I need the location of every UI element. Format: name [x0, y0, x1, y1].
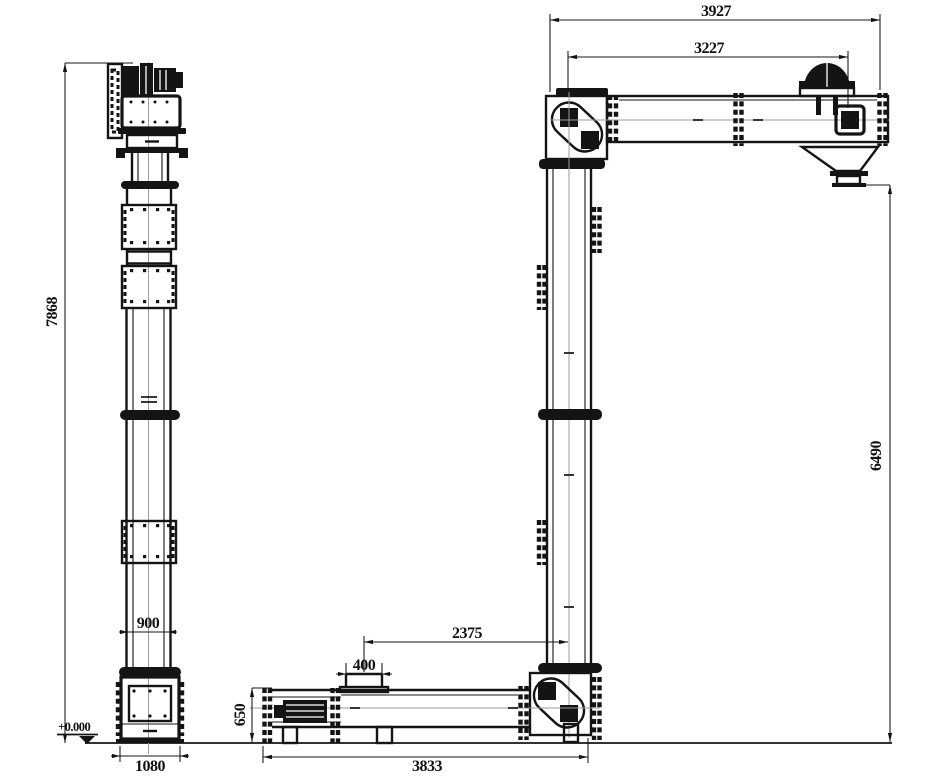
dimension-1080: 1080: [111, 746, 189, 775]
dim-label-650: 650: [232, 703, 249, 726]
elevator-boot: [116, 667, 184, 743]
vertical-leg: [538, 92, 602, 738]
dim-label-3227: 3227: [694, 40, 725, 57]
dim-label-1080: 1080: [135, 758, 166, 775]
leg-flange-joint: [538, 409, 602, 420]
elevation-marker: +0.000: [57, 720, 98, 744]
dim-label-900: 900: [137, 615, 160, 632]
top-corner-unit: [539, 88, 616, 169]
head-mounting-bracket: [108, 64, 122, 138]
elevation-drawing: +0.000: [0, 0, 925, 778]
bracket-bolt-strip: [112, 70, 118, 132]
drawing-sheet: +0.000: [0, 0, 925, 778]
dim-label-7868: 7868: [44, 297, 61, 328]
dimension-6490: 6490: [862, 185, 892, 742]
dim-label-6490: 6490: [868, 441, 885, 472]
dimension-2375: 2375: [364, 625, 568, 672]
dim-label-3927: 3927: [701, 3, 732, 20]
boot-base-plate: [116, 739, 184, 743]
leg-bottom-flange: [538, 663, 602, 673]
bucket: [581, 131, 599, 149]
boot-drive-motor: [274, 700, 327, 723]
chain-turn-path: [527, 671, 591, 734]
drive-motor: [123, 63, 183, 96]
outlet-flange: [832, 183, 866, 187]
bottom-corner-unit: [527, 671, 600, 742]
neck-flange-collar: [121, 181, 179, 189]
dimension-400: 400: [336, 657, 392, 676]
motor-shaft: [274, 705, 283, 718]
motor-end-cap: [176, 72, 183, 88]
dimension-7868: 7868: [44, 63, 133, 743]
corner-bottom-flange: [539, 159, 605, 169]
ground-level-label: +0.000: [58, 720, 90, 734]
discharge-hopper: [802, 147, 878, 187]
head-bottom-band: [118, 128, 186, 134]
dim-label-400: 400: [353, 657, 376, 674]
left-bucket-elevator: [108, 62, 188, 754]
dim-label-2375: 2375: [452, 625, 483, 642]
head-flange: [116, 148, 188, 153]
support-leg: [377, 727, 392, 743]
motor-base-plate: [800, 88, 854, 96]
dim-label-3833: 3833: [412, 758, 443, 775]
support-leg: [283, 727, 297, 743]
elevator-column: [120, 308, 180, 667]
column-flange-joint: [120, 410, 180, 420]
bucket: [538, 682, 556, 700]
head-neck: [121, 153, 179, 189]
